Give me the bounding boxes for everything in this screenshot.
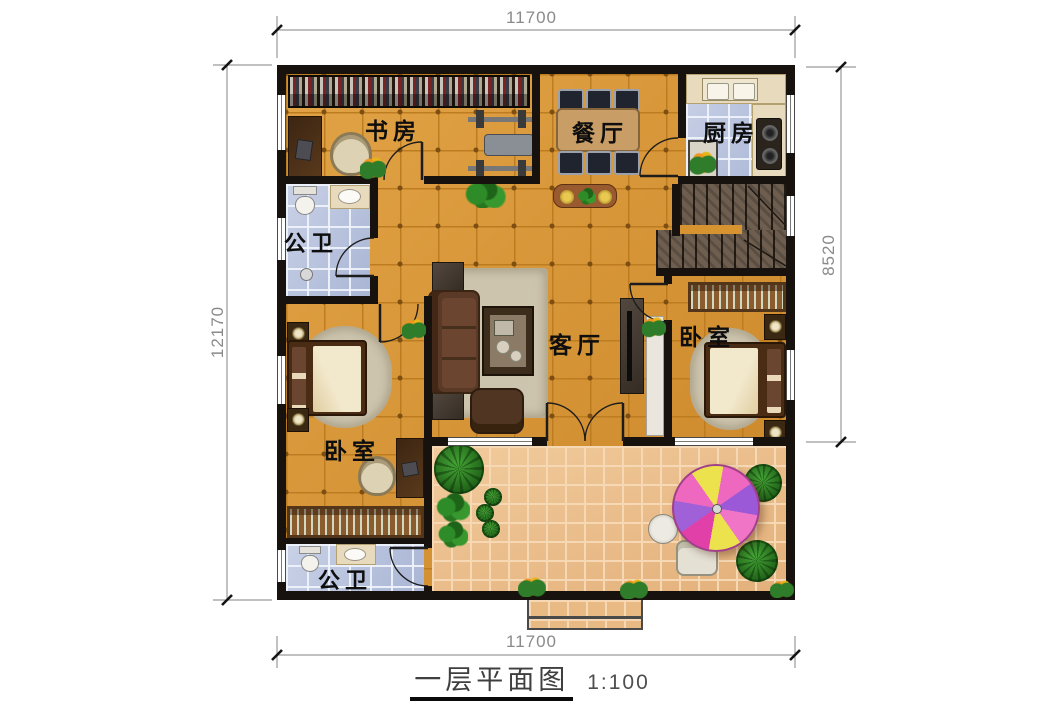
title-block: 一层平面图1:100 [0, 658, 1060, 697]
annotation-layer [0, 0, 1060, 704]
room-label-bath-upper: 公卫 [284, 226, 338, 258]
room-label-bedroom-left: 卧室 [324, 432, 380, 466]
door-swings [336, 138, 678, 586]
flower-pot [770, 580, 794, 598]
dimension-lines [213, 16, 856, 668]
flower-pot [402, 318, 426, 340]
flower-pot [620, 579, 648, 599]
floor-plan-canvas: 书房 餐厅 厨房 公卫 客厅 卧室 卧室 公卫 11700 11700 1217… [0, 0, 1060, 704]
room-label-bath-lower: 公卫 [318, 563, 372, 595]
drawing-scale: 1:100 [587, 671, 650, 694]
dimension-top: 11700 [506, 8, 557, 28]
room-label-dining: 餐厅 [572, 114, 628, 148]
stair-lines [744, 186, 786, 266]
dimension-bottom: 11700 [506, 632, 557, 652]
flower-pot [642, 316, 666, 338]
room-label-kitchen: 厨房 [703, 114, 759, 148]
flower-pot [690, 150, 716, 176]
drawing-title: 一层平面图 [410, 665, 573, 701]
room-label-study: 书房 [365, 112, 421, 146]
flower-pot [360, 156, 386, 180]
dimension-left: 12170 [208, 306, 228, 358]
room-label-bedroom-right: 卧室 [679, 318, 735, 352]
dimension-right: 8520 [819, 234, 839, 276]
room-label-living: 客厅 [549, 326, 605, 360]
flower-pot [518, 577, 546, 597]
